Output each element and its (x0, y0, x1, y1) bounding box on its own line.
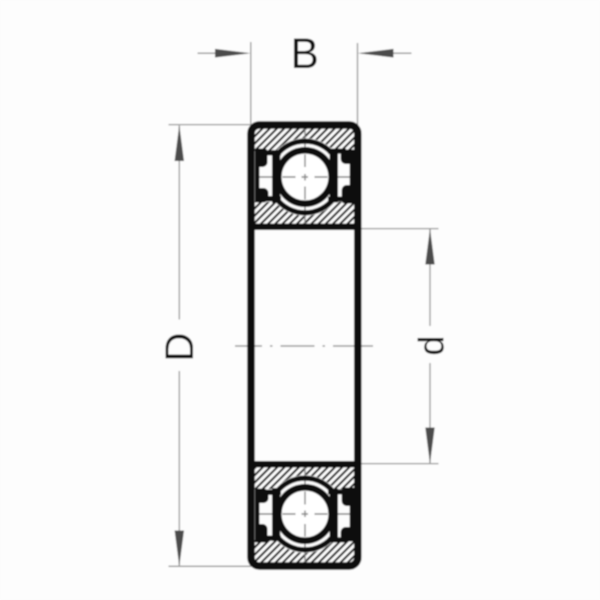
svg-text:D: D (158, 333, 202, 362)
svg-text:B: B (291, 31, 319, 78)
svg-text:d: d (411, 336, 452, 356)
